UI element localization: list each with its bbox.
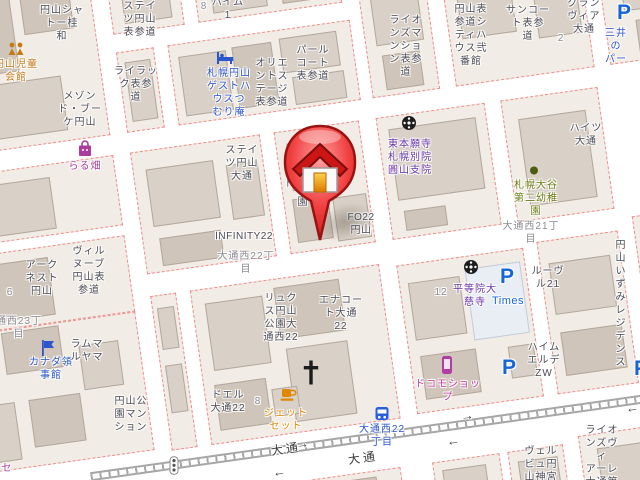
building-label[interactable]: ライオ ンズヴィ アーレ 大通第 [583, 424, 621, 480]
map-canvas[interactable]: 円山シャ トー桂 和 円山児童 会館 メゾン ド・ブー ケ円山 ステイ ツ円山 … [0, 0, 640, 480]
traffic-direction-arrow: ← [625, 400, 640, 415]
building-label[interactable]: アーク ネスト 円山 [26, 259, 59, 298]
chome-label: 通西23丁 目 [0, 315, 42, 341]
chome-label: 大通西21丁 目 [502, 220, 559, 246]
building-label[interactable]: リュク ス円山 公園大 通西22 [263, 292, 298, 344]
building-label[interactable]: 円山い ずみレ ジデン ス [612, 239, 631, 369]
block-number: 8 [201, 0, 208, 13]
building-label[interactable]: メゾン ド・ブー ケ円山 [58, 90, 102, 129]
building-label[interactable]: ハイム エルデ ZW [528, 341, 561, 380]
poi-label-times[interactable]: Times [492, 295, 524, 308]
children-hall-icon[interactable] [7, 42, 25, 56]
poi-label-consulate[interactable]: カナダ領 事館 [29, 356, 73, 382]
poi-label-guesthouse[interactable]: 札幌円山 ゲストハ ウスつ むり庵 [207, 67, 251, 119]
block-number: 2 [558, 32, 565, 45]
building-label[interactable]: 円山公 園マン ション [115, 395, 148, 434]
building-label[interactable]: ステイ ツ円山 大通 [226, 144, 259, 183]
building-label[interactable]: ハイツ 大通 [570, 122, 603, 148]
building-label[interactable]: グラン ヴィア 大通 [568, 0, 601, 36]
block-number: 8 [255, 395, 262, 408]
parking-p-icon[interactable]: P [500, 266, 514, 288]
building-label[interactable]: ドエル 大通22 [210, 389, 245, 415]
building-label[interactable]: パール コート 表参道 [297, 44, 330, 83]
church-cross-icon[interactable] [303, 360, 319, 385]
mobile-phone-icon[interactable] [441, 355, 453, 375]
poi-label-mitsui-repark[interactable]: 三井の パー [604, 27, 628, 66]
building-label[interactable]: ヴェル ビュ円 山神宮 [525, 445, 558, 480]
temple-crest-icon[interactable] [463, 259, 479, 275]
parking-p-icon[interactable]: P [502, 357, 516, 379]
building-label[interactable]: ヴィル ヌーブ 円山表 参道 [73, 245, 106, 297]
building-label[interactable]: ハイム 1 [212, 0, 245, 22]
traffic-direction-arrow: ← [272, 464, 287, 479]
cafe-cup-icon[interactable] [279, 387, 297, 403]
city-block [432, 453, 511, 480]
poi-label-jido-kaikan[interactable]: 円山児童 会館 [0, 58, 38, 84]
poi-label-docomo[interactable]: ドコモショッ プ [415, 378, 481, 404]
building-label[interactable]: 円山シャ トー桂 和 [40, 4, 84, 43]
temple-crest-icon[interactable] [401, 115, 417, 131]
shop-bag-icon[interactable] [78, 140, 93, 157]
building-label[interactable]: オリエ ントス テージ 表参道 [256, 57, 289, 109]
poi-label-cafe[interactable]: ジェット セット [264, 407, 308, 433]
chome-label: 大通西22丁 目 [217, 250, 274, 276]
traffic-direction-arrow: → [295, 436, 310, 451]
building-label[interactable]: 円山表 参道シ ティハ ウス弐 番館 [455, 3, 488, 68]
city-block [150, 293, 197, 451]
building-label[interactable]: ルーヴ ル21 [532, 265, 565, 291]
tram-stop-label[interactable]: 大通西22 丁目 [359, 423, 405, 449]
traffic-direction-arrow: → [460, 408, 475, 423]
building-label[interactable]: ステイ ツ円山 表参道 [124, 0, 157, 39]
traffic-light-icon [169, 456, 179, 475]
poi-label-partial: セ [2, 462, 13, 475]
kindergarten-dot-icon[interactable] [530, 166, 539, 175]
building-label[interactable]: ライオ ンズマ ンショ ン表参 道 [390, 14, 423, 79]
building-label[interactable]: サンコー ト表参 道 [506, 4, 550, 43]
poi-label-kindergarten[interactable]: 札幌大谷 第二幼稚 園 [514, 179, 558, 218]
block-number: 6 [7, 286, 14, 299]
parking-p-icon[interactable]: P [617, 2, 631, 24]
poi-label-temple[interactable]: 東本願寺 札幌別院 圓山支院 [388, 138, 432, 177]
building-label[interactable]: INFINITY22 [215, 230, 273, 243]
building-label[interactable]: エナコー ト大通 22 [319, 294, 363, 333]
poi-label-temple[interactable]: 平等院大 慈寺 [453, 283, 497, 309]
poi-label-shop[interactable]: らる畑 [69, 160, 102, 173]
tram-station-icon[interactable] [375, 406, 390, 422]
house-location-pin[interactable] [281, 124, 359, 244]
parking-p-icon[interactable]: P [634, 358, 640, 380]
traffic-direction-arrow: ← [446, 433, 461, 448]
city-block [222, 467, 413, 480]
building-label[interactable]: ライラッ ク表参 道 [114, 65, 158, 104]
building-label[interactable]: ラムマ ルヤマ [71, 338, 104, 364]
block-number: 12 [434, 286, 447, 299]
consulate-flag-icon[interactable] [40, 339, 56, 357]
guesthouse-bed-icon[interactable] [216, 51, 234, 65]
